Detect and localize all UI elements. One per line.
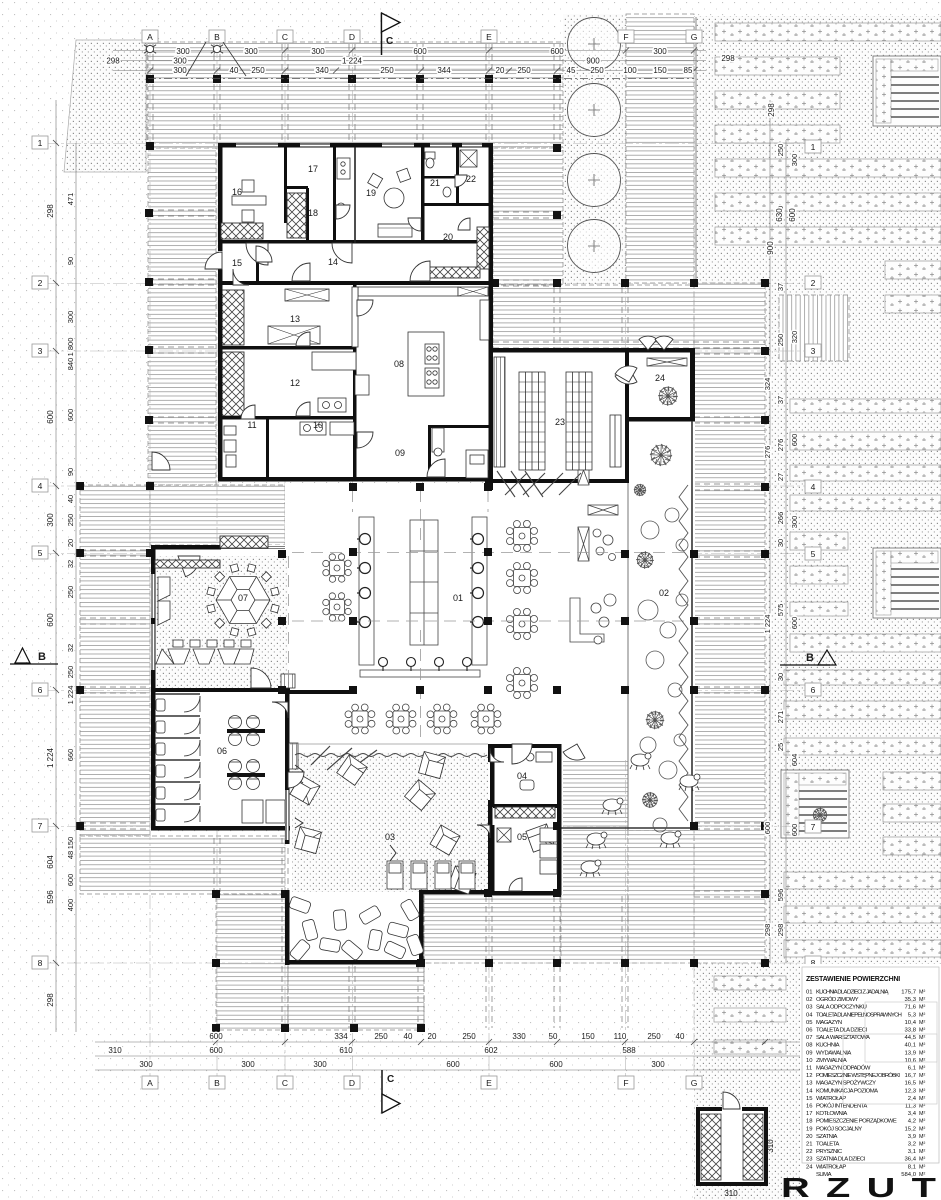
svg-text:07: 07 <box>806 1035 813 1041</box>
svg-text:300: 300 <box>139 1060 153 1069</box>
svg-text:604: 604 <box>790 754 799 767</box>
svg-text:WIATROŁAP: WIATROŁAP <box>816 1096 846 1102</box>
svg-text:36,4: 36,4 <box>905 1157 917 1163</box>
svg-text:40: 40 <box>66 495 75 503</box>
svg-text:276: 276 <box>776 439 785 452</box>
svg-text:330: 330 <box>512 1032 526 1041</box>
svg-text:33,8: 33,8 <box>905 1028 917 1034</box>
svg-text:300: 300 <box>790 516 799 529</box>
svg-text:40: 40 <box>404 1032 413 1041</box>
svg-text:3: 3 <box>38 346 43 356</box>
svg-text:B: B <box>214 1078 220 1088</box>
svg-text:16,7: 16,7 <box>905 1073 916 1079</box>
svg-text:44,5: 44,5 <box>905 1035 917 1041</box>
svg-text:M²: M² <box>919 1020 925 1026</box>
svg-text:M²: M² <box>919 1043 925 1049</box>
svg-text:C: C <box>386 36 393 47</box>
svg-text:06: 06 <box>217 746 227 756</box>
svg-text:298: 298 <box>763 924 772 937</box>
svg-text:M²: M² <box>919 990 925 996</box>
svg-text:1 224: 1 224 <box>46 747 55 768</box>
svg-text:100: 100 <box>623 66 637 75</box>
svg-text:M²: M² <box>919 1119 925 1125</box>
svg-text:600: 600 <box>66 409 75 422</box>
svg-text:1 800: 1 800 <box>66 338 75 357</box>
svg-text:SALA ODPOCZYNKU: SALA ODPOCZYNKU <box>816 1005 867 1011</box>
svg-text:C: C <box>282 32 288 42</box>
svg-text:02: 02 <box>806 997 813 1003</box>
svg-text:1: 1 <box>811 142 816 152</box>
svg-text:13,9: 13,9 <box>905 1050 916 1056</box>
svg-text:298: 298 <box>106 57 120 66</box>
svg-text:90: 90 <box>66 468 75 476</box>
svg-text:20: 20 <box>806 1134 813 1140</box>
svg-text:M²: M² <box>919 1088 925 1094</box>
svg-text:G: G <box>691 32 698 42</box>
svg-text:344: 344 <box>437 66 451 75</box>
svg-text:150: 150 <box>653 66 667 75</box>
svg-text:310: 310 <box>724 1189 738 1198</box>
svg-text:POMIESZCZENIE PORZĄDKOWE: POMIESZCZENIE PORZĄDKOWE <box>816 1119 897 1125</box>
svg-text:04: 04 <box>806 1012 813 1018</box>
svg-text:27: 27 <box>776 473 785 481</box>
svg-text:SZATNIA: SZATNIA <box>816 1134 838 1140</box>
svg-text:604: 604 <box>46 855 55 869</box>
svg-text:TOALETA DLA DZIECI: TOALETA DLA DZIECI <box>816 1028 868 1034</box>
svg-text:12: 12 <box>806 1073 813 1079</box>
svg-text:12: 12 <box>290 378 300 388</box>
svg-text:602: 602 <box>484 1046 498 1055</box>
svg-text:10,6: 10,6 <box>905 1058 917 1064</box>
svg-text:22: 22 <box>466 174 476 184</box>
svg-text:3: 3 <box>811 346 816 356</box>
svg-text:24: 24 <box>806 1164 813 1170</box>
svg-text:6: 6 <box>38 685 43 695</box>
svg-text:03: 03 <box>806 1005 813 1011</box>
svg-text:300: 300 <box>173 66 187 75</box>
svg-text:2: 2 <box>38 278 43 288</box>
svg-text:09: 09 <box>806 1050 813 1056</box>
svg-text:600: 600 <box>413 47 427 56</box>
svg-text:04: 04 <box>517 771 527 781</box>
svg-text:4: 4 <box>811 482 816 492</box>
svg-text:C: C <box>282 1078 288 1088</box>
svg-text:300: 300 <box>313 1060 327 1069</box>
svg-text:SZATNIA DLA DZIECI: SZATNIA DLA DZIECI <box>816 1157 866 1163</box>
svg-text:18: 18 <box>806 1119 813 1125</box>
svg-text:175,7: 175,7 <box>901 990 916 996</box>
svg-text:1 224: 1 224 <box>763 615 772 634</box>
svg-text:MAGAZYN: MAGAZYN <box>816 1020 842 1026</box>
svg-text:WIATROŁAP: WIATROŁAP <box>816 1164 846 1170</box>
svg-text:300: 300 <box>173 57 187 66</box>
svg-text:271: 271 <box>776 711 785 724</box>
svg-text:250: 250 <box>374 1032 388 1041</box>
svg-text:600: 600 <box>66 874 75 887</box>
svg-text:14: 14 <box>806 1088 813 1094</box>
svg-text:19: 19 <box>806 1126 813 1132</box>
svg-text:600: 600 <box>790 434 799 447</box>
svg-text:08: 08 <box>394 359 404 369</box>
svg-text:18: 18 <box>308 208 318 218</box>
svg-text:298: 298 <box>46 204 55 218</box>
svg-text:M²: M² <box>919 1058 925 1064</box>
svg-text:M²: M² <box>919 1096 925 1102</box>
svg-text:250: 250 <box>251 66 265 75</box>
svg-text:298: 298 <box>767 103 776 117</box>
svg-text:300: 300 <box>790 154 799 167</box>
svg-text:B: B <box>38 651 46 663</box>
svg-text:11: 11 <box>247 420 256 430</box>
svg-text:24: 24 <box>655 373 665 383</box>
svg-text:M²: M² <box>919 1066 925 1072</box>
svg-text:POKÓJ INTENDENTA: POKÓJ INTENDENTA <box>816 1103 867 1110</box>
svg-text:C: C <box>387 1074 394 1085</box>
svg-text:588: 588 <box>622 1046 636 1055</box>
svg-text:01: 01 <box>453 593 463 603</box>
svg-text:6,1: 6,1 <box>908 1066 916 1072</box>
svg-text:30: 30 <box>776 539 785 547</box>
svg-text:M²: M² <box>919 1126 925 1132</box>
svg-text:M²: M² <box>919 1035 925 1041</box>
svg-text:90: 90 <box>66 257 75 265</box>
svg-text:250: 250 <box>776 334 785 347</box>
svg-text:ZESTAWIENIE POWIERZCHNI: ZESTAWIENIE POWIERZCHNI <box>806 976 900 983</box>
svg-text:02: 02 <box>659 588 669 598</box>
svg-text:11: 11 <box>806 1066 812 1072</box>
svg-text:250: 250 <box>776 144 785 157</box>
svg-text:OGRÓD ZIMOWY: OGRÓD ZIMOWY <box>816 996 859 1003</box>
svg-text:10: 10 <box>313 420 323 430</box>
svg-text:MAGAZYN SPOŻYWCZY: MAGAZYN SPOŻYWCZY <box>816 1080 876 1087</box>
svg-text:M²: M² <box>919 1142 925 1148</box>
svg-text:16: 16 <box>806 1104 813 1110</box>
svg-text:600: 600 <box>549 1060 563 1069</box>
svg-text:37: 37 <box>776 283 785 291</box>
svg-text:300: 300 <box>66 311 75 324</box>
svg-text:D: D <box>349 32 355 42</box>
svg-text:20: 20 <box>428 1032 437 1041</box>
svg-text:M²: M² <box>919 1134 925 1140</box>
svg-text:310: 310 <box>766 1139 775 1153</box>
svg-text:3,2: 3,2 <box>908 1142 916 1148</box>
svg-text:300: 300 <box>311 47 325 56</box>
svg-text:10: 10 <box>806 1058 813 1064</box>
svg-text:250: 250 <box>462 1032 476 1041</box>
svg-text:17: 17 <box>806 1111 813 1117</box>
svg-text:400: 400 <box>66 899 75 912</box>
svg-text:M²: M² <box>919 1164 925 1170</box>
svg-text:07: 07 <box>238 593 248 603</box>
svg-text:300: 300 <box>176 47 190 56</box>
svg-text:600: 600 <box>763 822 772 835</box>
svg-text:17: 17 <box>308 164 318 174</box>
svg-text:15: 15 <box>232 258 242 268</box>
svg-text:8,1: 8,1 <box>908 1164 916 1170</box>
svg-text:A: A <box>147 32 153 42</box>
svg-text:23: 23 <box>806 1157 813 1163</box>
svg-text:600: 600 <box>446 1060 460 1069</box>
svg-text:21: 21 <box>806 1142 813 1148</box>
svg-text:300: 300 <box>244 47 258 56</box>
svg-text:M²: M² <box>919 1149 925 1155</box>
svg-text:266: 266 <box>776 512 785 525</box>
svg-text:630: 630 <box>775 208 784 222</box>
svg-text:1: 1 <box>38 138 43 148</box>
svg-text:50: 50 <box>549 1032 558 1041</box>
svg-text:3,9: 3,9 <box>908 1134 916 1140</box>
svg-text:22: 22 <box>806 1149 813 1155</box>
svg-text:08: 08 <box>806 1043 813 1049</box>
svg-text:D: D <box>349 1078 355 1088</box>
svg-text:471: 471 <box>66 193 75 206</box>
svg-text:13: 13 <box>290 314 300 324</box>
svg-text:POMIESZCZNIE WSTĘPNEJ OBRÓBKI: POMIESZCZNIE WSTĘPNEJ OBRÓBKI <box>816 1072 900 1079</box>
svg-text:10,4: 10,4 <box>905 1020 917 1026</box>
svg-text:2,4: 2,4 <box>908 1096 917 1102</box>
svg-text:16,5: 16,5 <box>905 1081 917 1087</box>
svg-text:8: 8 <box>38 958 43 968</box>
svg-text:15: 15 <box>806 1096 813 1102</box>
svg-text:B: B <box>214 32 220 42</box>
svg-text:M²: M² <box>919 1050 925 1056</box>
svg-text:7: 7 <box>38 821 43 831</box>
svg-text:MAGAZYN ODPADÓW: MAGAZYN ODPADÓW <box>816 1065 871 1072</box>
svg-text:B: B <box>806 652 814 664</box>
svg-text:19: 19 <box>366 188 376 198</box>
svg-text:250: 250 <box>66 666 75 679</box>
svg-text:298: 298 <box>776 924 785 937</box>
svg-text:300: 300 <box>241 1060 255 1069</box>
svg-text:575: 575 <box>776 604 785 617</box>
svg-text:310: 310 <box>108 1046 122 1055</box>
svg-text:M²: M² <box>919 1081 925 1087</box>
svg-text:600: 600 <box>46 410 55 424</box>
svg-text:596: 596 <box>776 889 785 902</box>
svg-text:M²: M² <box>919 1157 925 1163</box>
svg-text:320: 320 <box>790 331 799 344</box>
svg-text:600: 600 <box>790 824 799 837</box>
svg-text:600: 600 <box>790 617 799 630</box>
svg-text:E: E <box>486 32 492 42</box>
svg-text:85: 85 <box>684 66 693 75</box>
svg-text:3,4: 3,4 <box>908 1111 917 1117</box>
svg-text:KOMUNIKACJA POZIOMA: KOMUNIKACJA POZIOMA <box>816 1088 878 1094</box>
svg-text:F: F <box>623 1078 628 1088</box>
svg-text:250: 250 <box>66 514 75 527</box>
svg-text:150: 150 <box>66 837 75 850</box>
svg-text:900: 900 <box>586 57 600 66</box>
svg-text:596: 596 <box>46 890 55 904</box>
svg-text:20: 20 <box>443 232 453 242</box>
svg-text:250: 250 <box>590 66 604 75</box>
svg-text:2: 2 <box>811 278 816 288</box>
svg-text:25: 25 <box>776 743 785 751</box>
svg-text:M²: M² <box>919 1073 925 1079</box>
svg-text:20: 20 <box>66 539 75 547</box>
svg-text:40: 40 <box>676 1032 685 1041</box>
svg-text:5: 5 <box>811 549 816 559</box>
svg-text:600: 600 <box>550 47 564 56</box>
svg-text:250: 250 <box>66 586 75 599</box>
svg-text:600: 600 <box>46 613 55 627</box>
svg-text:48: 48 <box>66 851 75 859</box>
svg-text:40,1: 40,1 <box>905 1043 916 1049</box>
svg-text:M²: M² <box>919 1005 925 1011</box>
svg-text:340: 340 <box>315 66 329 75</box>
svg-text:G: G <box>691 1078 698 1088</box>
svg-text:7: 7 <box>811 822 816 832</box>
svg-text:03: 03 <box>385 832 395 842</box>
svg-text:M²: M² <box>919 1111 925 1117</box>
svg-text:32: 32 <box>66 644 75 652</box>
svg-text:250: 250 <box>380 66 394 75</box>
svg-text:334: 334 <box>334 1032 348 1041</box>
svg-text:3,1: 3,1 <box>908 1149 916 1155</box>
svg-text:324: 324 <box>763 378 772 391</box>
svg-text:298: 298 <box>721 54 735 63</box>
svg-text:12,3: 12,3 <box>905 1088 917 1094</box>
svg-text:05: 05 <box>517 832 527 842</box>
svg-text:600: 600 <box>788 208 797 222</box>
svg-text:610: 610 <box>339 1046 353 1055</box>
svg-text:14: 14 <box>328 257 338 267</box>
svg-text:110: 110 <box>614 1032 627 1041</box>
svg-text:1 224: 1 224 <box>342 57 363 66</box>
svg-text:600: 600 <box>209 1046 223 1055</box>
svg-text:300: 300 <box>651 1060 665 1069</box>
svg-text:250: 250 <box>517 66 531 75</box>
svg-text:09: 09 <box>395 448 405 458</box>
svg-text:RZUT: RZUT <box>781 1173 941 1200</box>
svg-text:M²: M² <box>919 1104 925 1110</box>
svg-text:ZMYWALNIA: ZMYWALNIA <box>816 1058 847 1064</box>
svg-text:250: 250 <box>647 1032 661 1041</box>
svg-text:150: 150 <box>581 1032 595 1041</box>
svg-text:06: 06 <box>806 1028 813 1034</box>
svg-text:71,6: 71,6 <box>905 1005 917 1011</box>
svg-text:40: 40 <box>230 66 239 75</box>
svg-text:600: 600 <box>209 1032 223 1041</box>
svg-text:PRYSZNIC: PRYSZNIC <box>816 1149 843 1155</box>
svg-text:M²: M² <box>919 1012 925 1018</box>
svg-text:23: 23 <box>555 417 565 427</box>
svg-text:660: 660 <box>66 749 75 762</box>
svg-text:TOALETA DLA NIEPEŁNOSPRAWNYCH: TOALETA DLA NIEPEŁNOSPRAWNYCH <box>816 1012 902 1018</box>
svg-text:900: 900 <box>766 241 775 255</box>
svg-text:32: 32 <box>66 560 75 568</box>
svg-text:E: E <box>486 1078 492 1088</box>
svg-text:TOALETA: TOALETA <box>816 1142 839 1148</box>
svg-text:11,3: 11,3 <box>905 1104 917 1110</box>
svg-text:13: 13 <box>806 1081 813 1087</box>
svg-text:A: A <box>147 1078 153 1088</box>
svg-text:M²: M² <box>919 1028 925 1034</box>
svg-text:POKÓJ SOCJALNY: POKÓJ SOCJALNY <box>816 1125 862 1132</box>
svg-text:16: 16 <box>232 187 242 197</box>
svg-text:5,3: 5,3 <box>908 1012 917 1018</box>
svg-text:WYDAWALNIA: WYDAWALNIA <box>816 1050 851 1056</box>
svg-text:6: 6 <box>811 685 816 695</box>
svg-text:21: 21 <box>430 178 440 188</box>
svg-text:01: 01 <box>806 990 813 996</box>
svg-text:KUCHNIA: KUCHNIA <box>816 1043 840 1049</box>
svg-text:1 224: 1 224 <box>66 686 75 705</box>
svg-text:F: F <box>623 32 628 42</box>
svg-text:298: 298 <box>46 993 55 1007</box>
svg-text:20: 20 <box>496 66 505 75</box>
svg-text:276: 276 <box>763 446 772 459</box>
svg-text:300: 300 <box>46 513 55 527</box>
svg-text:15,2: 15,2 <box>905 1126 916 1132</box>
svg-text:300: 300 <box>653 47 667 56</box>
svg-text:4,2: 4,2 <box>908 1119 916 1125</box>
svg-text:4: 4 <box>38 481 43 491</box>
svg-text:45: 45 <box>567 66 576 75</box>
svg-text:KOTŁOWNIA: KOTŁOWNIA <box>816 1111 847 1117</box>
svg-text:KUCHNIA DLA DZIECI Z JADALNIĄ: KUCHNIA DLA DZIECI Z JADALNIĄ <box>816 990 889 996</box>
svg-text:840: 840 <box>66 358 75 371</box>
svg-text:5: 5 <box>38 548 43 558</box>
svg-text:05: 05 <box>806 1020 813 1026</box>
svg-text:30: 30 <box>776 673 785 681</box>
svg-text:37: 37 <box>776 396 785 404</box>
